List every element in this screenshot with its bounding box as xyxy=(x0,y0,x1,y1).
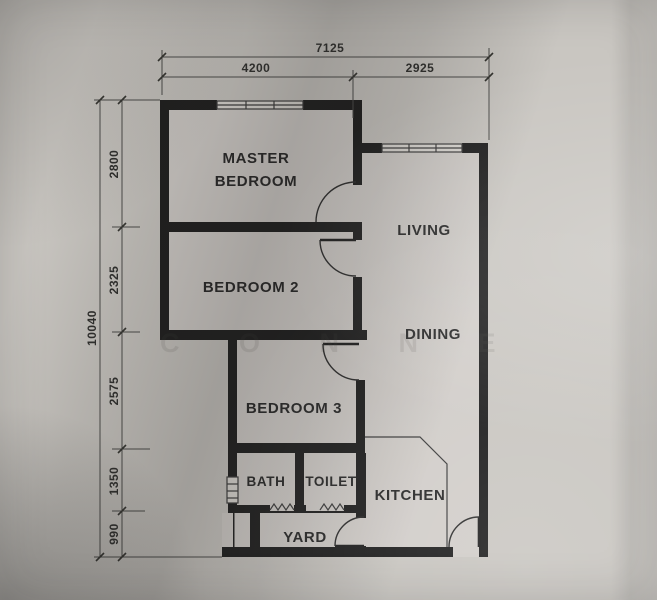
dim-left-total: 10040 xyxy=(85,310,99,346)
label-bath: BATH xyxy=(247,474,286,489)
window-bath-louvre xyxy=(227,477,238,503)
label-master-bedroom-line2: BEDROOM xyxy=(215,173,298,190)
floor-plan-drawing: 7125 4200 2925 10040 2800 2325 2575 xyxy=(0,0,657,600)
dim-top-total: 7125 xyxy=(316,41,345,55)
label-toilet: TOILET xyxy=(305,474,357,489)
window-living xyxy=(382,144,462,152)
window-master-bedroom xyxy=(217,101,303,109)
label-yard: YARD xyxy=(283,529,327,546)
dim-left-segment-5: 990 xyxy=(107,523,121,545)
label-kitchen: KITCHEN xyxy=(375,487,446,504)
label-bedroom2: BEDROOM 2 xyxy=(203,279,299,296)
floor-plan-photo: 7125 4200 2925 10040 2800 2325 2575 xyxy=(0,0,657,600)
dim-left-segment-1: 2800 xyxy=(107,150,121,179)
label-master-bedroom-line1: MASTER xyxy=(223,150,290,167)
dim-top-segment-1: 4200 xyxy=(242,61,271,75)
label-bedroom3: BEDROOM 3 xyxy=(246,400,342,417)
dim-top-segment-2: 2925 xyxy=(406,61,435,75)
label-living: LIVING xyxy=(397,222,451,239)
dim-left-segment-4: 1350 xyxy=(107,467,121,496)
dim-left-segment-3: 2575 xyxy=(107,377,121,406)
dim-left-segment-2: 2325 xyxy=(107,266,121,295)
watermark: C O N N E xyxy=(160,328,522,358)
